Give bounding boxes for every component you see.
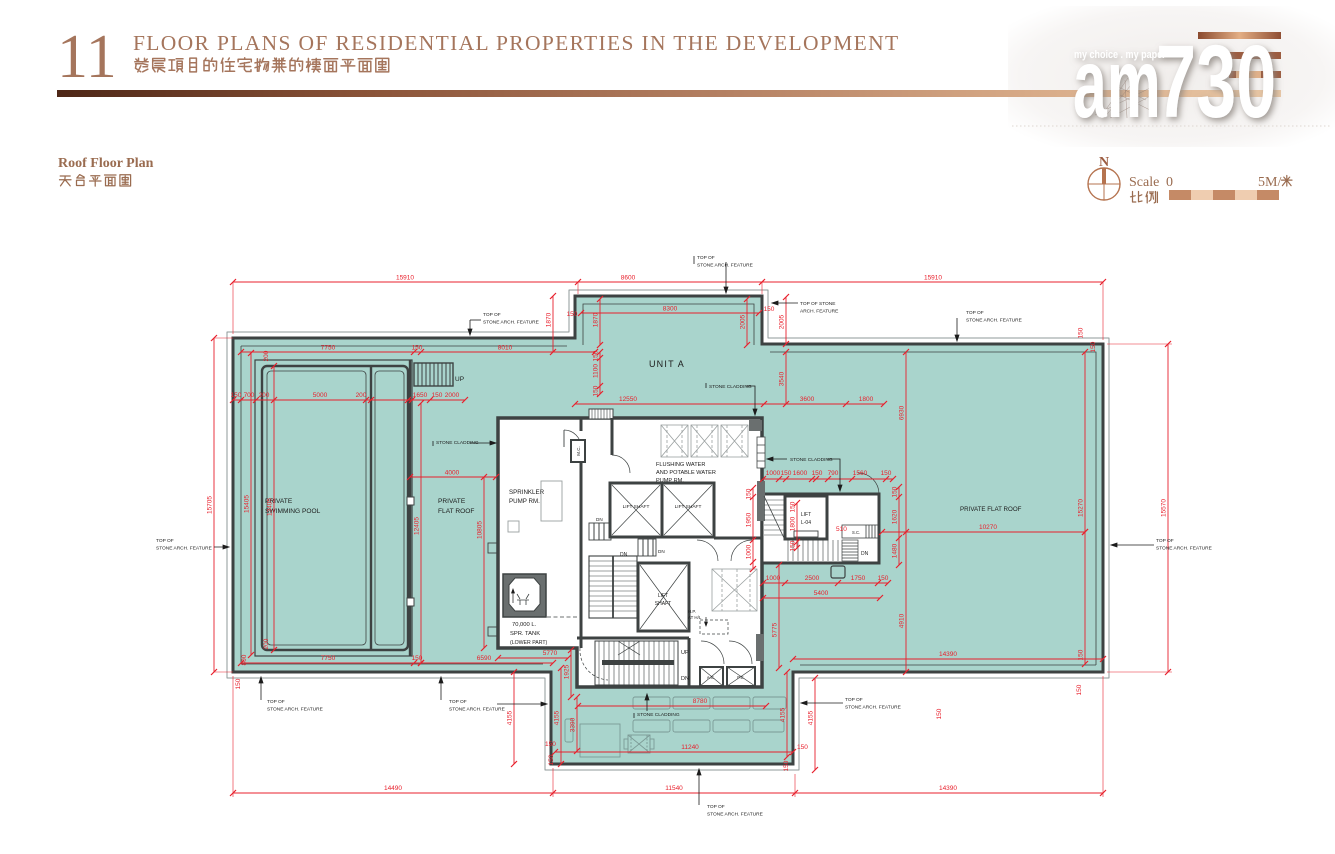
svg-text:1650: 1650 — [413, 392, 428, 399]
svg-text:(LOWER PART): (LOWER PART) — [510, 640, 548, 646]
svg-text:LIFT SHAFT: LIFT SHAFT — [675, 504, 702, 510]
svg-text:6590: 6590 — [477, 655, 492, 662]
svg-text:TOP OF: TOP OF — [483, 312, 501, 318]
svg-text:1870: 1870 — [546, 312, 553, 327]
svg-text:TOP OF: TOP OF — [707, 804, 725, 810]
svg-text:150: 150 — [812, 470, 823, 477]
svg-text:200: 200 — [259, 392, 270, 399]
svg-text:3390: 3390 — [570, 717, 577, 732]
svg-text:LIFT SHAFT: LIFT SHAFT — [623, 504, 650, 510]
svg-text:N: N — [1099, 155, 1109, 170]
svg-text:150: 150 — [790, 540, 797, 551]
svg-text:Roof Floor Plan: Roof Floor Plan — [58, 156, 154, 171]
svg-text:6930: 6930 — [899, 405, 906, 420]
svg-text:TOP OF STONE: TOP OF STONE — [800, 301, 835, 307]
svg-text:1800: 1800 — [859, 396, 874, 403]
svg-text:PRIVATE: PRIVATE — [438, 498, 466, 505]
svg-text:UNIT A: UNIT A — [649, 359, 685, 369]
svg-text:15570: 15570 — [1161, 499, 1168, 517]
svg-text:13405: 13405 — [267, 498, 274, 516]
svg-text:200: 200 — [356, 392, 367, 399]
svg-text:150: 150 — [231, 392, 242, 399]
svg-text:8010: 8010 — [498, 345, 513, 352]
svg-text:LIFT: LIFT — [658, 593, 668, 599]
svg-text:150: 150 — [548, 754, 555, 765]
svg-text:TOP OF: TOP OF — [697, 255, 715, 261]
svg-text:10805: 10805 — [477, 521, 484, 539]
svg-text:5400: 5400 — [814, 590, 829, 597]
svg-text:150: 150 — [1078, 327, 1085, 338]
svg-text:1480: 1480 — [892, 543, 899, 558]
svg-text:700: 700 — [244, 392, 255, 399]
svg-text:150: 150 — [1076, 684, 1083, 695]
svg-text:150: 150 — [892, 486, 899, 497]
svg-text:1870: 1870 — [593, 312, 600, 327]
svg-text:12550: 12550 — [619, 396, 637, 403]
svg-text:8300: 8300 — [663, 306, 678, 313]
svg-text:1925: 1925 — [564, 664, 571, 679]
svg-text:AND POTABLE WATER: AND POTABLE WATER — [656, 470, 716, 476]
svg-text:3600: 3600 — [800, 396, 815, 403]
svg-text:DN: DN — [620, 552, 628, 558]
svg-text:0: 0 — [1166, 175, 1173, 190]
svg-text:STONE ARCH. FEATURE: STONE ARCH. FEATURE — [697, 263, 753, 269]
svg-text:TOP OF: TOP OF — [1156, 538, 1174, 544]
svg-text:SPRINKLER: SPRINKLER — [509, 489, 545, 496]
svg-text:Scale: Scale — [1129, 175, 1159, 190]
svg-text:STONE ARCH. FEATURE: STONE ARCH. FEATURE — [156, 546, 212, 552]
svg-text:1000: 1000 — [766, 470, 781, 477]
svg-text:200: 200 — [263, 638, 270, 649]
svg-text:14390: 14390 — [939, 651, 957, 658]
svg-text:5000: 5000 — [313, 392, 328, 399]
svg-text:PUMP RM.: PUMP RM. — [656, 478, 684, 484]
svg-text:1560: 1560 — [853, 470, 868, 477]
svg-text:150: 150 — [1090, 341, 1097, 352]
svg-text:STONE ARCH. FEATURE: STONE ARCH. FEATURE — [966, 318, 1022, 324]
svg-text:STONE CLADDING: STONE CLADDING — [637, 712, 680, 718]
svg-text:2005: 2005 — [740, 314, 747, 329]
svg-text:70,000 L.: 70,000 L. — [512, 622, 537, 628]
svg-text:FLUSHING WATER: FLUSHING WATER — [656, 462, 705, 468]
svg-text:150: 150 — [764, 306, 775, 313]
svg-text:15910: 15910 — [924, 275, 942, 282]
svg-text:150: 150 — [412, 655, 423, 662]
svg-text:14390: 14390 — [939, 785, 957, 792]
svg-text:15270: 15270 — [1078, 499, 1085, 517]
svg-text:1000: 1000 — [746, 544, 753, 559]
svg-text:8780: 8780 — [693, 698, 708, 705]
svg-text:12405: 12405 — [414, 517, 421, 535]
svg-text:15405: 15405 — [244, 495, 251, 513]
svg-text:2005: 2005 — [779, 314, 786, 329]
svg-text:8600: 8600 — [621, 275, 636, 282]
svg-text:STONE CLADDING: STONE CLADDING — [790, 457, 833, 463]
svg-text:TOP OF: TOP OF — [449, 699, 467, 705]
svg-text:150: 150 — [781, 470, 792, 477]
svg-text:4155: 4155 — [554, 710, 561, 725]
svg-text:510: 510 — [836, 526, 847, 533]
svg-text:1750: 1750 — [851, 575, 866, 582]
svg-text:1800: 1800 — [790, 516, 797, 531]
svg-text:11540: 11540 — [665, 785, 683, 792]
svg-text:1000: 1000 — [766, 575, 781, 582]
svg-text:5770: 5770 — [543, 650, 558, 657]
svg-text:TOP OF: TOP OF — [966, 310, 984, 316]
svg-text:P.C.: P.C. — [737, 675, 745, 680]
svg-text:DN: DN — [596, 517, 603, 522]
svg-text:FLAT ROOF: FLAT ROOF — [438, 508, 474, 515]
svg-text:730: 730 — [1156, 24, 1276, 139]
svg-text:STONE ARCH. FEATURE: STONE ARCH. FEATURE — [845, 705, 901, 711]
svg-text:5775: 5775 — [772, 622, 779, 637]
svg-text:11: 11 — [57, 23, 117, 91]
svg-text:M.C.: M.C. — [576, 446, 581, 456]
svg-text:L-04: L-04 — [801, 520, 811, 526]
svg-text:150: 150 — [412, 345, 423, 352]
svg-text:10270: 10270 — [979, 524, 997, 531]
svg-text:SHAFT: SHAFT — [655, 601, 671, 607]
svg-text:UP: UP — [455, 376, 464, 383]
svg-text:2500: 2500 — [805, 575, 820, 582]
svg-text:LIFT: LIFT — [801, 512, 811, 518]
svg-text:FLOOR PLANS OF RESIDENTIAL PRO: FLOOR PLANS OF RESIDENTIAL PROPERTIES IN… — [133, 31, 900, 55]
svg-text:150: 150 — [790, 501, 797, 512]
svg-text:4155: 4155 — [507, 710, 514, 725]
svg-text:800: 800 — [241, 654, 248, 665]
svg-text:150: 150 — [432, 392, 443, 399]
svg-text:2000: 2000 — [445, 392, 460, 399]
svg-text:TOP OF: TOP OF — [267, 699, 285, 705]
svg-text:am: am — [1073, 29, 1161, 138]
svg-text:150: 150 — [746, 488, 753, 499]
svg-text:ARCH. FEATURE: ARCH. FEATURE — [800, 309, 838, 315]
svg-text:1100: 1100 — [593, 364, 600, 378]
svg-text:1620: 1620 — [892, 509, 899, 524]
svg-text:4910: 4910 — [899, 613, 906, 628]
svg-text:TOP OF: TOP OF — [156, 538, 174, 544]
svg-text:150: 150 — [878, 575, 889, 582]
svg-text:14490: 14490 — [384, 785, 402, 792]
svg-text:STONE CLADDING: STONE CLADDING — [709, 384, 752, 390]
svg-text:7750: 7750 — [321, 655, 336, 662]
svg-text:4155: 4155 — [808, 710, 815, 725]
svg-text:790: 790 — [828, 470, 839, 477]
svg-text:150: 150 — [235, 678, 242, 689]
svg-text:DN: DN — [658, 549, 665, 554]
svg-text:150: 150 — [783, 760, 790, 771]
svg-text:150: 150 — [797, 744, 808, 751]
svg-text:STONE ARCH. FEATURE: STONE ARCH. FEATURE — [483, 320, 539, 326]
svg-text:STONE ARCH. FEATURE: STONE ARCH. FEATURE — [707, 812, 763, 818]
svg-text:STONE ARCH. FEATURE: STONE ARCH. FEATURE — [449, 707, 505, 713]
svg-text:150: 150 — [545, 741, 556, 748]
svg-text:1950: 1950 — [746, 512, 753, 527]
svg-text:11240: 11240 — [681, 744, 699, 751]
svg-text:PRIVATE FLAT ROOF: PRIVATE FLAT ROOF — [960, 506, 1022, 513]
svg-text:15705: 15705 — [207, 496, 214, 514]
svg-text:150: 150 — [881, 470, 892, 477]
svg-text:150: 150 — [936, 708, 943, 719]
svg-text:3540: 3540 — [779, 371, 786, 386]
svg-text:DN: DN — [861, 551, 869, 557]
svg-text:150: 150 — [593, 350, 600, 361]
svg-text:SPR. TANK: SPR. TANK — [510, 631, 540, 637]
svg-text:150: 150 — [593, 385, 600, 396]
svg-text:5M/: 5M/ — [1258, 175, 1281, 190]
svg-text:DN: DN — [681, 676, 689, 682]
svg-text:A.C.: A.C. — [707, 675, 715, 680]
svg-text:UP: UP — [681, 650, 689, 656]
svg-text:S.C.: S.C. — [852, 530, 860, 535]
svg-text:200: 200 — [263, 350, 270, 361]
svg-text:150: 150 — [567, 311, 578, 318]
svg-text:1600: 1600 — [793, 470, 808, 477]
svg-text:AT H/L: AT H/L — [688, 615, 702, 620]
svg-text:7750: 7750 — [321, 345, 336, 352]
svg-text:4155: 4155 — [780, 707, 787, 722]
svg-text:15910: 15910 — [396, 275, 414, 282]
svg-text:STONE ARCH. FEATURE: STONE ARCH. FEATURE — [267, 707, 323, 713]
svg-text:TOP OF: TOP OF — [845, 697, 863, 703]
svg-text:4000: 4000 — [445, 470, 460, 477]
svg-text:PUMP RM.: PUMP RM. — [509, 498, 540, 505]
svg-text:H.P.: H.P. — [688, 609, 696, 614]
svg-text:STONE ARCH. FEATURE: STONE ARCH. FEATURE — [1156, 546, 1212, 552]
